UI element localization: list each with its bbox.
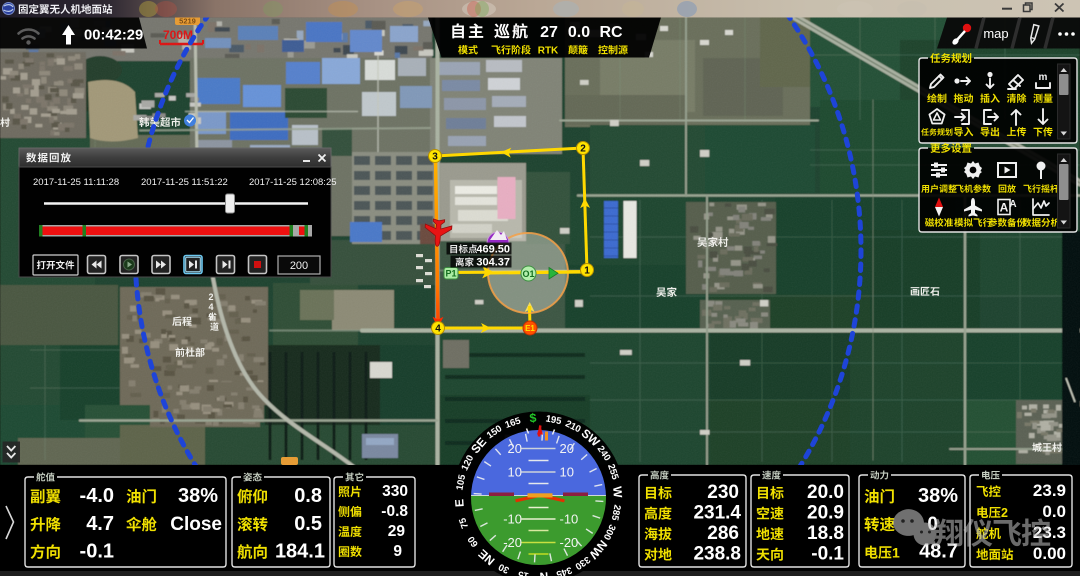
svg-text:304.37: 304.37 bbox=[476, 257, 510, 269]
svg-text:9: 9 bbox=[393, 543, 402, 560]
svg-text:184.1: 184.1 bbox=[275, 541, 325, 563]
svg-text:4: 4 bbox=[435, 324, 441, 335]
svg-text:0.5: 0.5 bbox=[294, 513, 322, 535]
svg-text:map: map bbox=[983, 26, 1008, 41]
svg-text:-0.1: -0.1 bbox=[811, 544, 844, 565]
svg-text:2017-11-25 12:08:25: 2017-11-25 12:08:25 bbox=[249, 177, 337, 188]
svg-text:200: 200 bbox=[290, 260, 308, 272]
svg-text:RC: RC bbox=[599, 24, 623, 41]
svg-text:38%: 38% bbox=[918, 485, 958, 507]
svg-text:$: $ bbox=[529, 411, 537, 425]
svg-text:286: 286 bbox=[707, 523, 739, 544]
svg-text:1: 1 bbox=[584, 266, 590, 277]
svg-text:00:42:29: 00:42:29 bbox=[84, 28, 143, 44]
svg-text:231.4: 231.4 bbox=[693, 503, 741, 524]
svg-text:2: 2 bbox=[580, 144, 586, 155]
svg-text:20.9: 20.9 bbox=[807, 503, 844, 524]
svg-text:m: m bbox=[1039, 72, 1048, 83]
svg-text:23.9: 23.9 bbox=[1033, 481, 1066, 500]
svg-text:A: A bbox=[1000, 201, 1009, 215]
svg-text:0.00: 0.00 bbox=[1033, 544, 1066, 563]
svg-text:1: 1 bbox=[892, 545, 900, 561]
svg-text:27: 27 bbox=[540, 24, 558, 41]
svg-text:2017-11-25 11:11:28: 2017-11-25 11:11:28 bbox=[33, 177, 119, 188]
svg-text:-4.0: -4.0 bbox=[80, 485, 114, 507]
svg-text:-10: -10 bbox=[503, 512, 522, 527]
svg-text:O1: O1 bbox=[522, 269, 534, 279]
svg-text:230: 230 bbox=[707, 482, 739, 503]
svg-text:2017-11-25 11:51:22: 2017-11-25 11:51:22 bbox=[141, 177, 228, 188]
svg-text:0.0: 0.0 bbox=[1042, 502, 1066, 521]
svg-text:469.50: 469.50 bbox=[476, 244, 510, 256]
svg-text:-0.1: -0.1 bbox=[80, 541, 114, 563]
svg-text:-0.8: -0.8 bbox=[381, 503, 408, 520]
svg-text:-20: -20 bbox=[560, 535, 579, 550]
svg-text:2: 2 bbox=[1001, 506, 1008, 520]
svg-text:10: 10 bbox=[560, 465, 574, 480]
svg-text:18.8: 18.8 bbox=[807, 523, 844, 544]
svg-text:N: N bbox=[539, 569, 549, 576]
svg-text:P1: P1 bbox=[445, 269, 456, 279]
svg-text:38%: 38% bbox=[178, 485, 218, 507]
svg-text:20: 20 bbox=[508, 441, 522, 456]
svg-text:RTK: RTK bbox=[538, 46, 559, 57]
svg-text:A: A bbox=[1009, 199, 1016, 210]
svg-text:4.7: 4.7 bbox=[86, 513, 114, 535]
svg-text:10: 10 bbox=[508, 465, 522, 480]
svg-text:330: 330 bbox=[382, 483, 408, 500]
svg-text:29: 29 bbox=[388, 523, 406, 540]
svg-text:-10: -10 bbox=[560, 512, 579, 527]
svg-text:Close: Close bbox=[170, 514, 222, 535]
svg-text:3: 3 bbox=[432, 152, 438, 163]
svg-text:W: W bbox=[610, 486, 625, 499]
svg-text:20.0: 20.0 bbox=[807, 482, 844, 503]
svg-text:238.8: 238.8 bbox=[693, 544, 741, 565]
svg-text:E: E bbox=[452, 499, 467, 508]
svg-text:0.8: 0.8 bbox=[294, 485, 322, 507]
svg-text:20: 20 bbox=[560, 441, 574, 456]
svg-text:E1: E1 bbox=[525, 324, 535, 333]
svg-text:0.0: 0.0 bbox=[568, 24, 590, 41]
